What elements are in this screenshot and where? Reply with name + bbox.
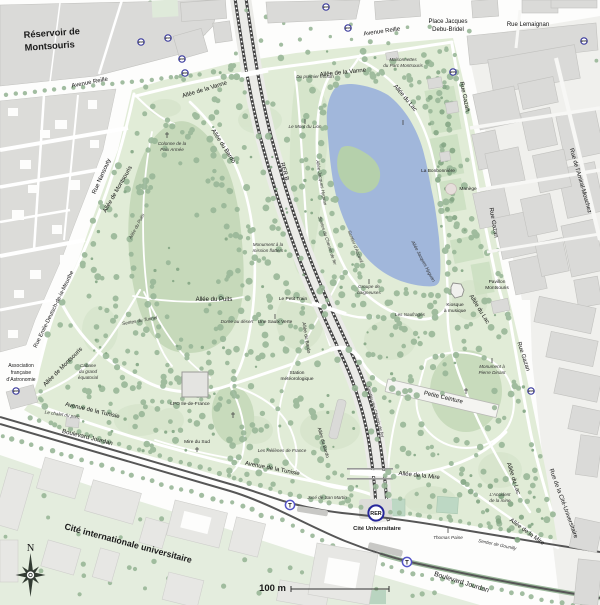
svg-text:Du premier frisson: Du premier frisson [296,74,334,79]
svg-text:BUS: BUS [581,39,587,43]
svg-text:BUS: BUS [182,71,188,75]
svg-text:d’Astronomie: d’Astronomie [6,377,35,383]
svg-text:José de San Martin: José de San Martin [306,495,347,500]
svg-text:T: T [405,560,409,566]
svg-text:100 m: 100 m [259,583,286,594]
svg-text:Mire du Sud: Mire du Sud [184,439,210,445]
svg-text:du Parc Montsouris: du Parc Montsouris [383,63,423,68]
svg-text:T: T [288,503,292,509]
svg-text:Paix Armée: Paix Armée [160,147,184,152]
svg-text:RER: RER [370,511,381,517]
svg-text:Monument à la: Monument à la [253,242,284,247]
svg-text:Thomas Paine: Thomas Paine [433,535,463,540]
svg-text:BUS: BUS [165,36,171,40]
svg-text:L’Accident: L’Accident [490,492,512,497]
svg-text:mission flatters: mission flatters [253,248,284,253]
svg-text:équatorial: équatorial [78,375,99,380]
svg-text:météorologique: météorologique [280,376,313,382]
svg-text:française: française [11,370,32,376]
svg-text:N: N [27,543,35,554]
svg-text:Groupe de: Groupe de [358,284,380,289]
svg-text:Station: Station [290,370,305,376]
svg-text:Pavillon: Pavillon [489,279,506,285]
svg-text:Cité Universitaire: Cité Universitaire [353,526,401,532]
svg-text:Les Héliènes de France: Les Héliènes de France [258,448,307,453]
svg-text:BUS: BUS [323,5,329,9]
svg-text:BUS: BUS [179,57,185,61]
svg-text:Les Naufragés: Les Naufragés [395,312,426,317]
svg-text:BUS: BUS [528,389,534,393]
svg-text:BUS: BUS [138,40,144,44]
svg-text:Manège: Manège [459,186,477,192]
svg-text:Dome au désert: Dome au désert [221,319,254,324]
svg-text:Place Jacques: Place Jacques [428,19,467,25]
svg-text:de la mine: de la mine [489,498,511,503]
svg-text:Debu-Bridel: Debu-Bridel [432,27,464,33]
svg-text:Une Saulx Verte: Une Saulx Verte [258,319,293,325]
svg-text:Pierre Dinant: Pierre Dinant [479,370,507,375]
svg-text:à musique: à musique [444,308,466,314]
svg-text:Monument à: Monument à [479,364,505,369]
svg-text:baigneuses: baigneuses [357,290,381,295]
svg-text:Rue Lemaignan: Rue Lemaignan [507,22,549,28]
svg-text:Allée du Puits: Allée du Puits [196,297,233,303]
svg-text:Montsouris: Montsouris [485,285,509,291]
svg-text:BUS: BUS [450,70,456,74]
svg-text:Kiosque: Kiosque [446,302,464,308]
svg-text:Le Mont du Lion: Le Mont du Lion [289,124,322,129]
svg-text:Le Petit Train: Le Petit Train [279,296,308,302]
svg-text:Colonne de la: Colonne de la [158,141,187,146]
svg-text:du grand: du grand [79,369,98,374]
svg-text:BUS: BUS [345,26,351,30]
svg-text:BUS: BUS [13,389,19,393]
svg-text:La Bonbonnière: La Bonbonnière [421,168,455,174]
svg-text:Association: Association [8,363,34,369]
svg-text:Cabane: Cabane [80,363,97,368]
svg-text:LPO Ile-de-France: LPO Ile-de-France [170,401,210,407]
svg-text:Maisonnettes: Maisonnettes [389,57,417,62]
